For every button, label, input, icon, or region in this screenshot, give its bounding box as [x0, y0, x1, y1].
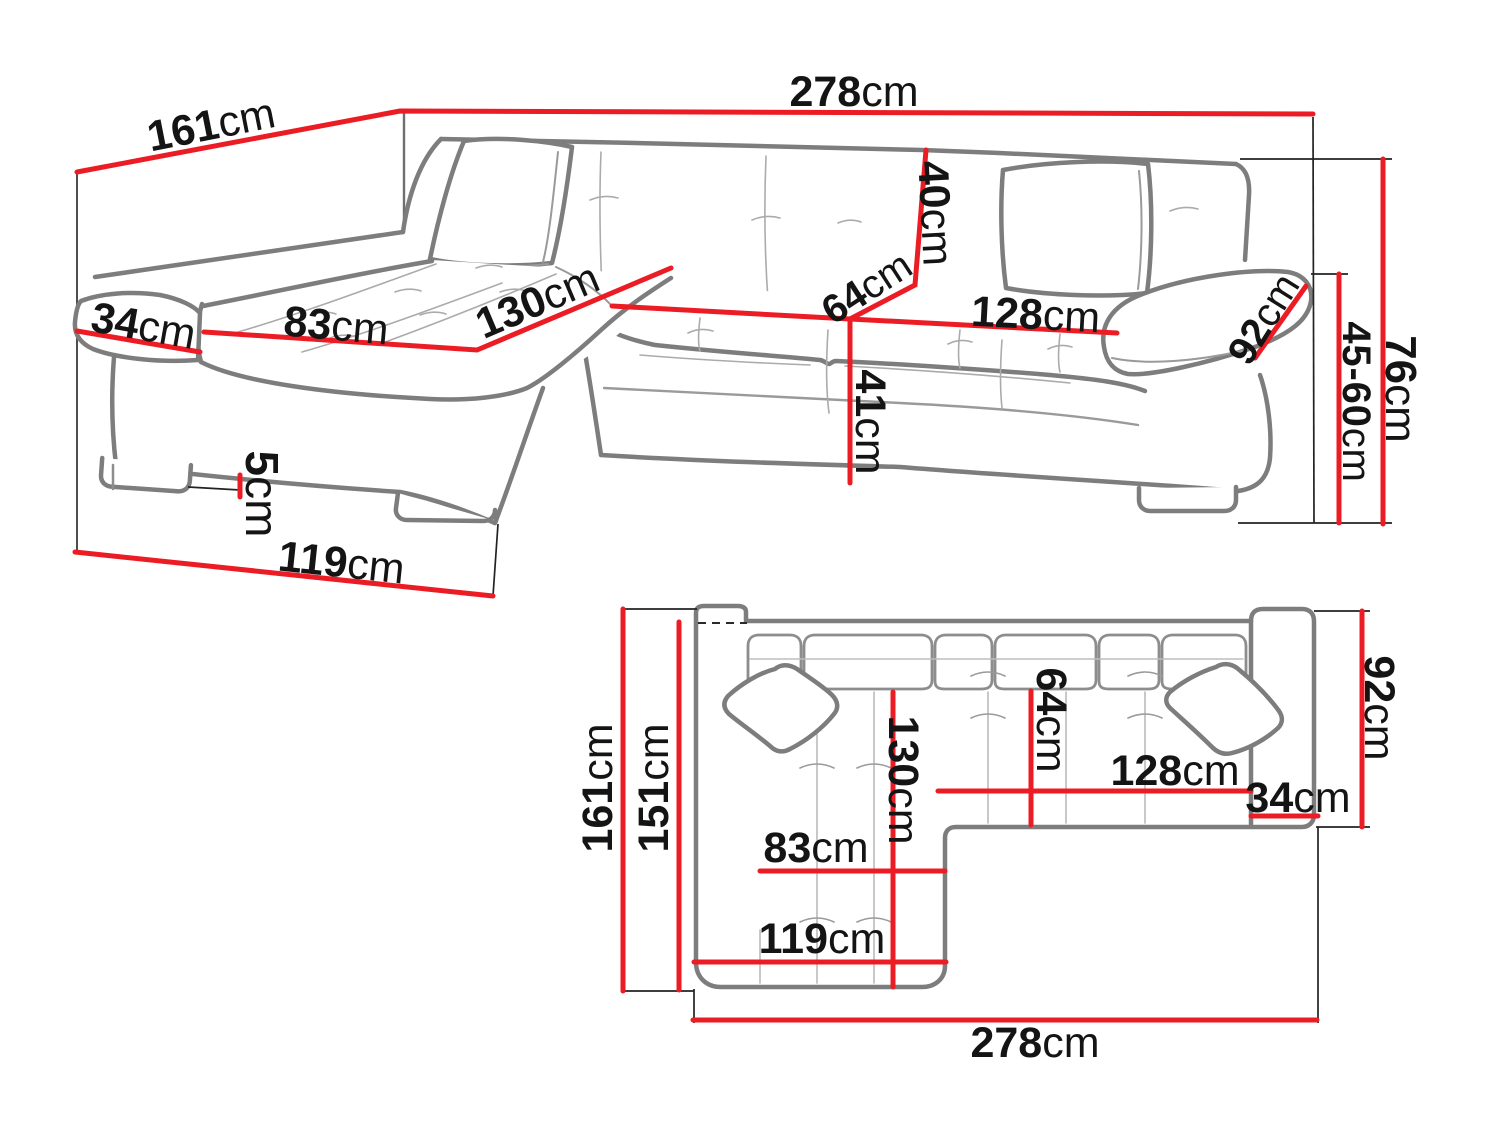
svg-text:128cm: 128cm	[1110, 747, 1239, 795]
svg-text:40cm: 40cm	[908, 159, 961, 267]
svg-text:130cm: 130cm	[879, 715, 927, 844]
svg-text:92cm: 92cm	[1355, 655, 1403, 760]
svg-text:41cm: 41cm	[846, 369, 894, 474]
svg-text:278cm: 278cm	[789, 68, 918, 116]
svg-text:151cm: 151cm	[630, 723, 678, 852]
svg-text:64cm: 64cm	[1027, 667, 1075, 772]
svg-text:45-60cm: 45-60cm	[1334, 321, 1378, 482]
svg-text:5cm: 5cm	[236, 451, 288, 538]
svg-text:161cm: 161cm	[574, 723, 622, 852]
svg-text:128cm: 128cm	[970, 288, 1101, 343]
svg-text:83cm: 83cm	[763, 824, 868, 872]
svg-text:161cm: 161cm	[143, 89, 279, 161]
svg-text:83cm: 83cm	[282, 298, 391, 355]
svg-text:119cm: 119cm	[276, 533, 407, 594]
svg-text:34cm: 34cm	[1245, 774, 1350, 822]
svg-text:76cm: 76cm	[1376, 335, 1425, 443]
svg-text:278cm: 278cm	[970, 1019, 1099, 1067]
svg-text:119cm: 119cm	[759, 915, 886, 963]
